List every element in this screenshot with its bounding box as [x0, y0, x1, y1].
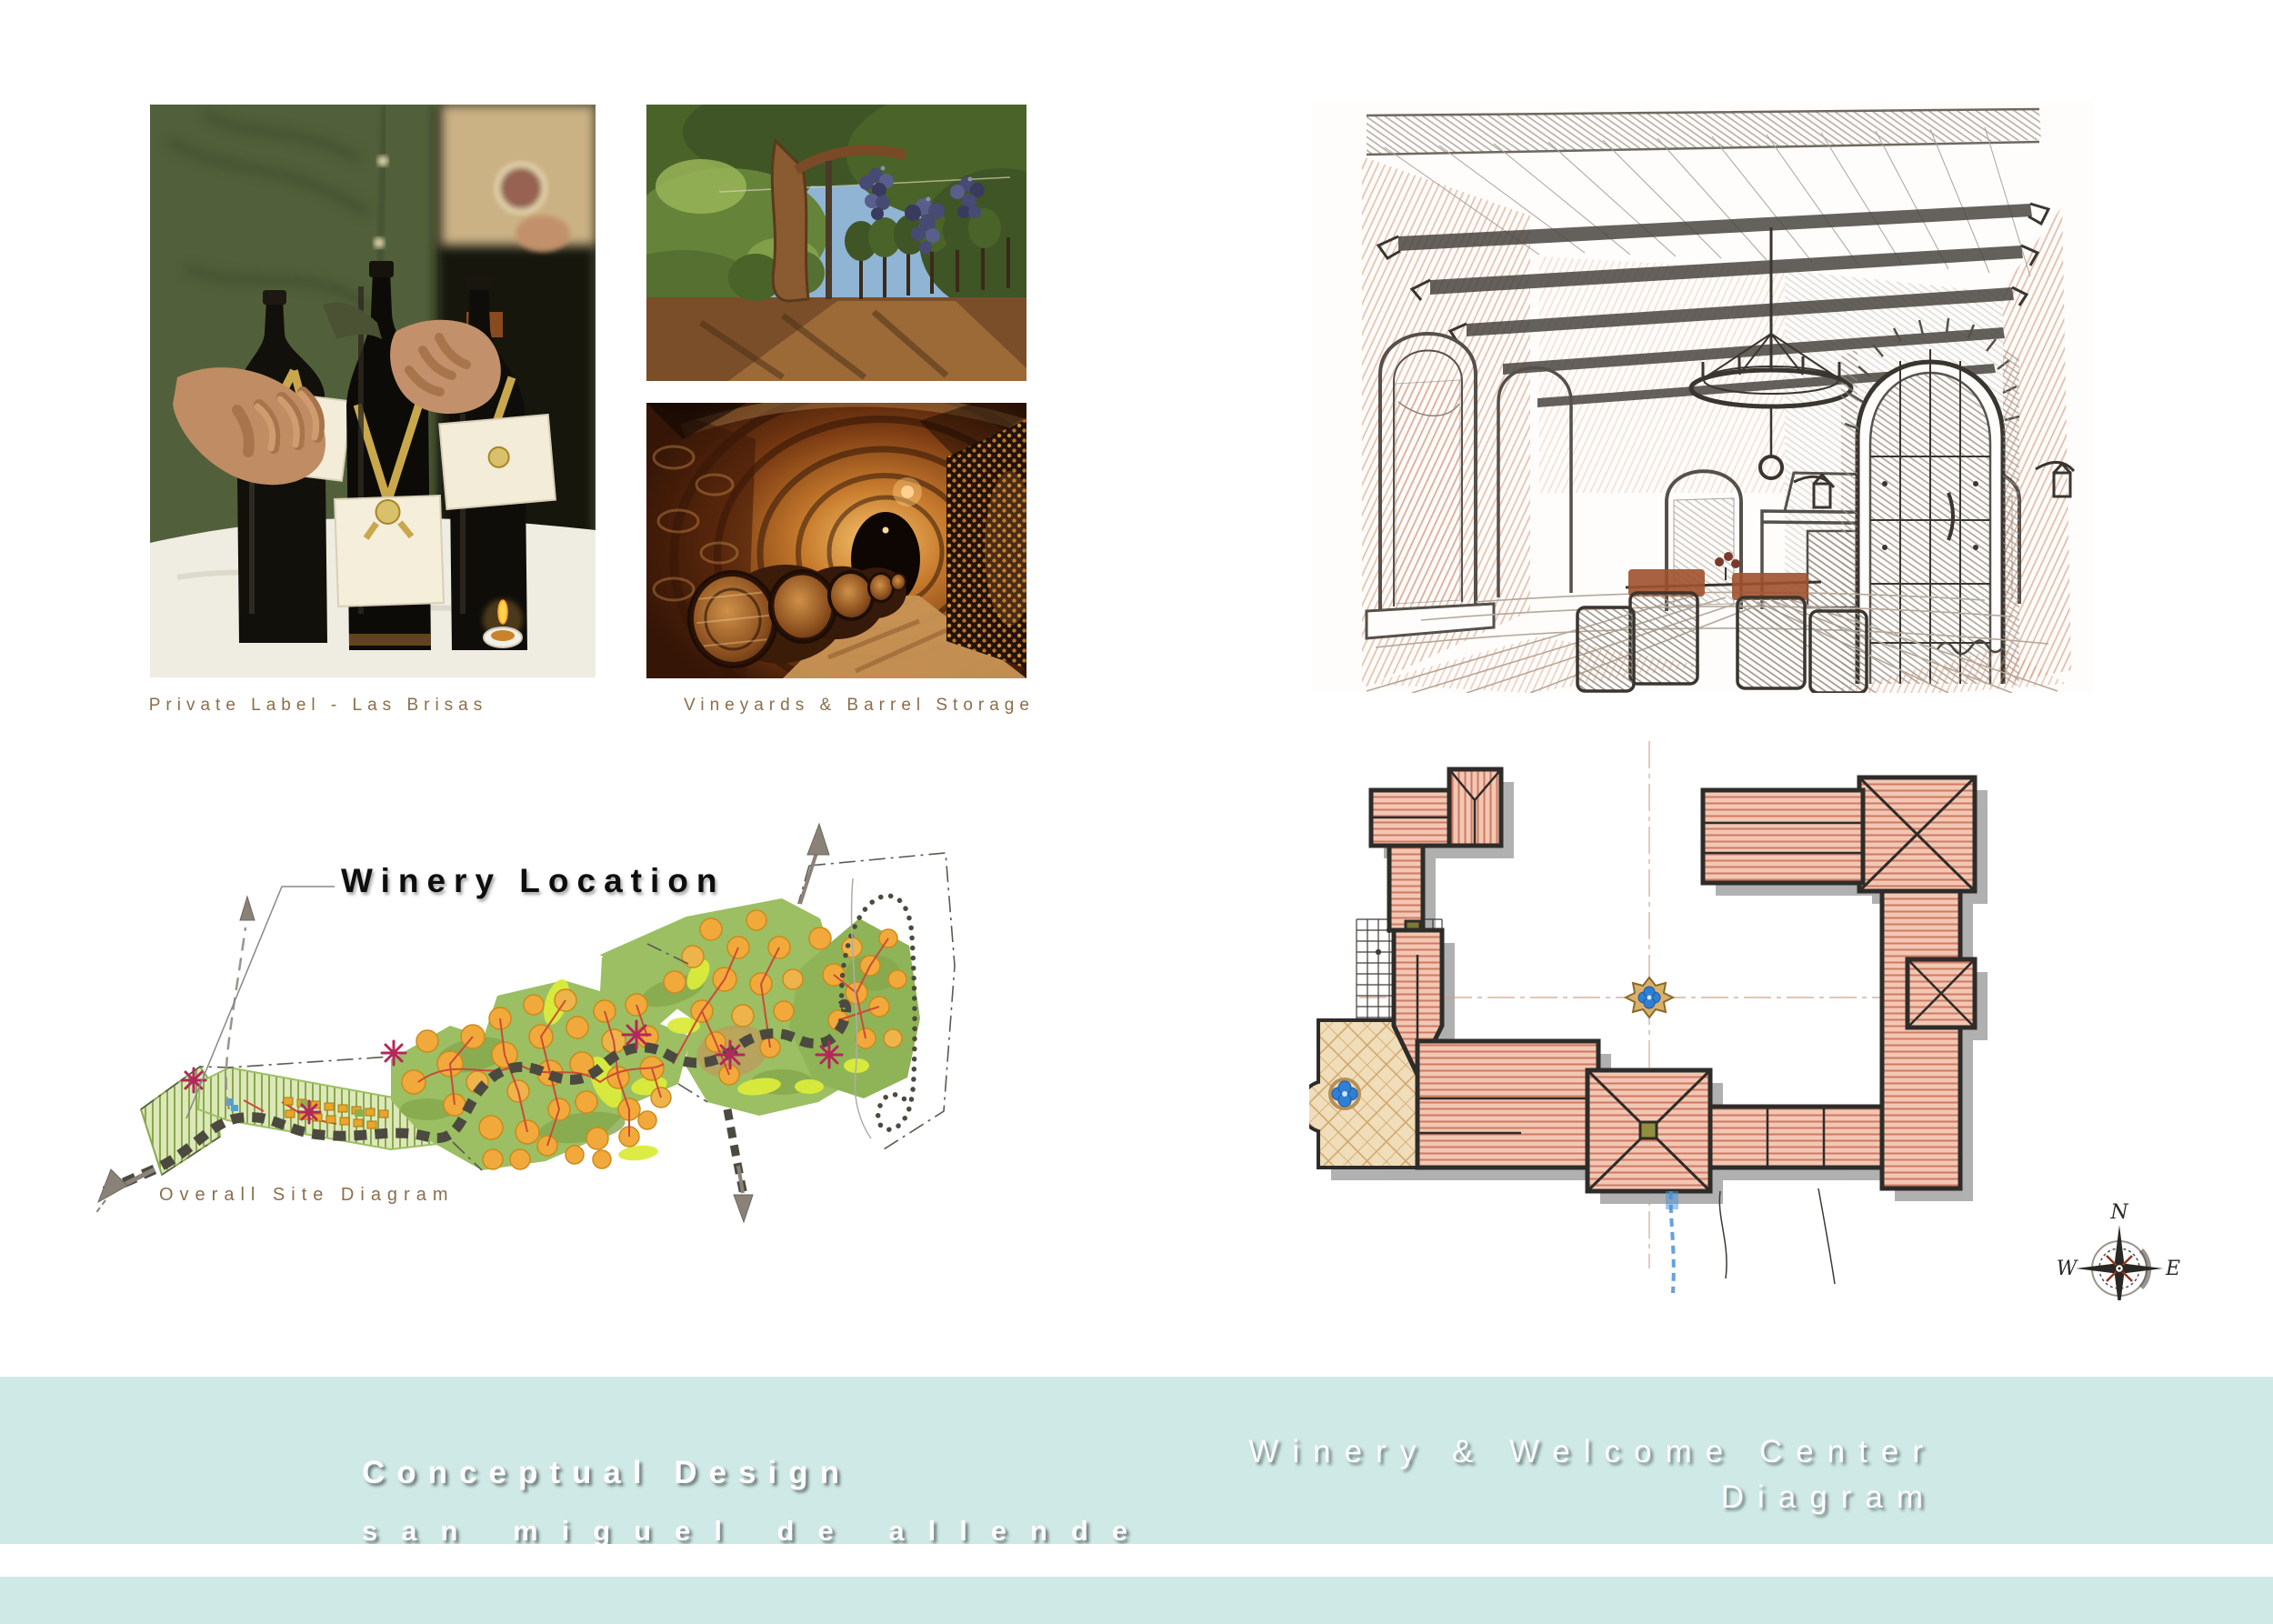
photo-barrel-storage-art: [646, 403, 1026, 678]
patio-fountain: [1330, 1079, 1359, 1108]
site-diagram-title: Winery Location: [341, 862, 725, 900]
compass-east-label: E: [2165, 1258, 2180, 1280]
building-northwest-square-roof: [1449, 769, 1501, 846]
courtyard-fountain: [1626, 977, 1673, 1018]
building-northeast-square-roof: [1859, 777, 1975, 891]
building-west-neck: [1389, 846, 1423, 930]
interior-sketch: [1312, 102, 2094, 697]
photo-vineyard-art: [646, 105, 1026, 381]
building-east-wing: [1882, 888, 1960, 1188]
floor-plan-art: N E S W: [1309, 737, 2273, 1300]
photo-vineyard: [646, 105, 1026, 381]
winery-buildings: [1371, 769, 1975, 1191]
building-north-wing: [1703, 790, 1863, 883]
caption-vineyards-barrels: Vineyards & Barrel Storage: [668, 696, 1050, 716]
photo-barrel-storage: [646, 403, 1026, 678]
presentation-board: Private Label - Las Brisas Vineyards & B…: [0, 0, 2273, 1624]
project-location: san miguel de allende: [362, 1515, 1151, 1544]
project-phase-title: Conceptual Design: [362, 1455, 851, 1491]
sheet-title-line1: Winery & Welcome Center: [1248, 1429, 1937, 1475]
caption-private-label: Private Label - Las Brisas: [127, 696, 509, 716]
site-diagram-caption: Overall Site Diagram: [159, 1185, 455, 1206]
compass-north-label: N: [2109, 1201, 2128, 1224]
footer-accent-band: [0, 1577, 2273, 1624]
utility-lines: [1666, 1188, 1835, 1293]
photo-private-label: [150, 105, 596, 677]
interior-sketch-art: [1312, 102, 2094, 693]
sheet-title-line2: Diagram: [1248, 1475, 1937, 1520]
building-south-square-roof: [1587, 1070, 1710, 1191]
sheet-title: Winery & Welcome Center Diagram: [1248, 1429, 1937, 1520]
photo-private-label-art: [150, 105, 596, 677]
wine-rack-right: [946, 419, 1026, 668]
gift-tag-right: [439, 415, 556, 509]
winery-floor-plan: N E S W: [1309, 737, 2273, 1305]
gift-tag-center: [335, 496, 444, 606]
wine-glass-blur: [497, 165, 545, 212]
building-southwest: [1417, 1041, 1598, 1168]
compass-rose: N E S W: [2057, 1201, 2180, 1300]
footer-title-band: Conceptual Design san miguel de allende …: [0, 1377, 2273, 1544]
compass-west-label: W: [2057, 1258, 2079, 1280]
building-east-square-roof: [1908, 959, 1975, 1028]
building-south-wing: [1710, 1107, 1882, 1168]
candle: [483, 599, 523, 647]
